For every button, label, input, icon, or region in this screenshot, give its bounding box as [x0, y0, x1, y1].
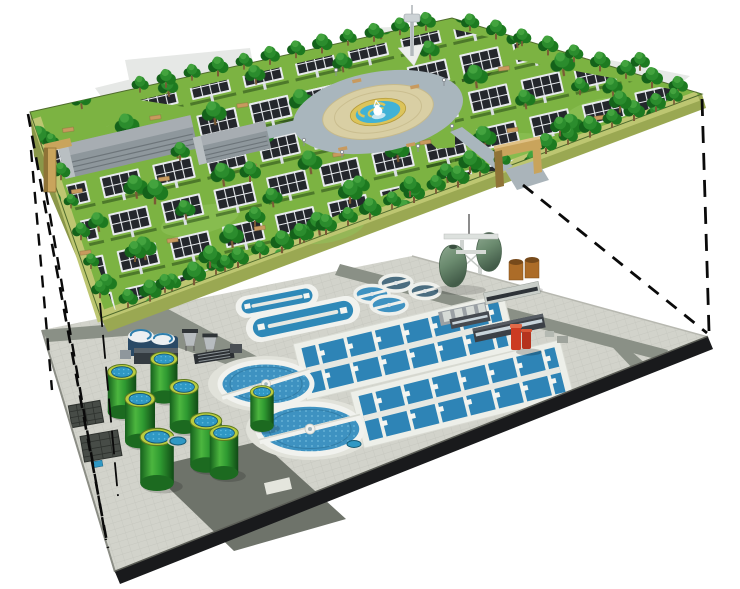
two-level-plant-diagram [0, 0, 740, 589]
projection-line-right-vertical [702, 99, 709, 331]
scene-illustration [0, 0, 740, 589]
